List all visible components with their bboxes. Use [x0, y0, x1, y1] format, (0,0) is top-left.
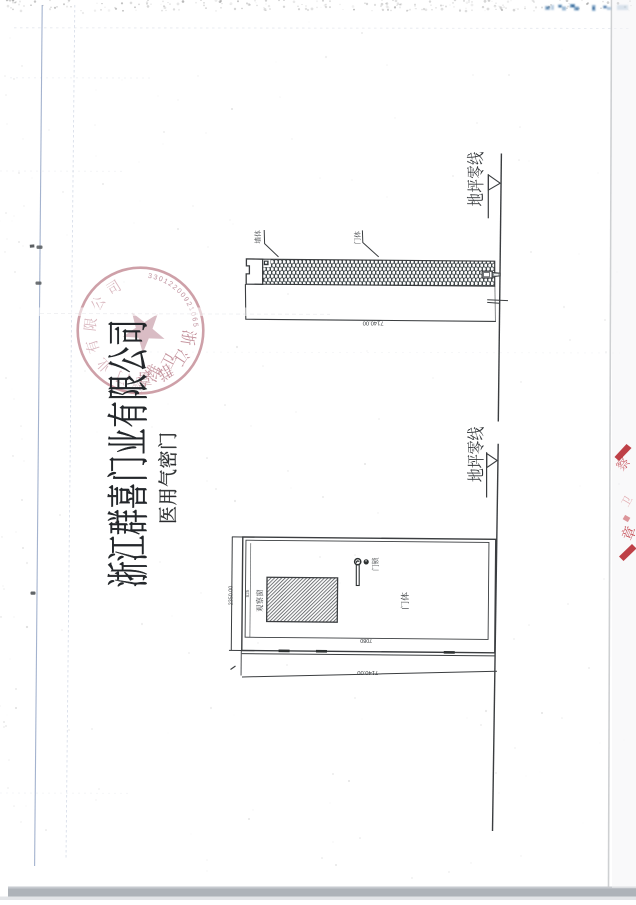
- svg-text:825: 825: [245, 589, 250, 597]
- svg-text:7140.00: 7140.00: [357, 669, 378, 675]
- svg-text:2350.00: 2350.00: [228, 586, 234, 606]
- svg-text:7140.00: 7140.00: [363, 320, 384, 326]
- svg-text:7080: 7080: [360, 637, 372, 643]
